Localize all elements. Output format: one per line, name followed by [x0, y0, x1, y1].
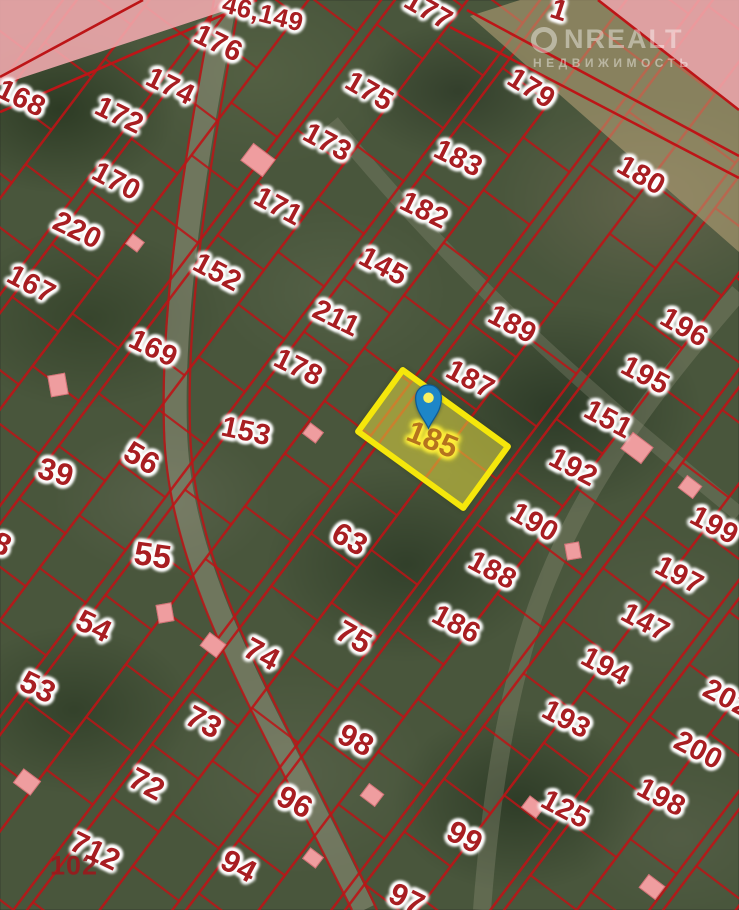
parcel-line	[173, 813, 219, 848]
parcel-line	[404, 295, 450, 330]
parcel-line	[358, 682, 404, 717]
parcel-line	[238, 304, 284, 339]
parcel-line	[133, 866, 179, 901]
parcel-line	[377, 24, 423, 59]
parcel-line	[523, 137, 569, 172]
parcel-line	[418, 699, 464, 734]
parcel-line	[483, 190, 529, 225]
parcel-line	[490, 392, 536, 427]
parcel-line	[643, 515, 689, 550]
parcel-line	[72, 313, 118, 348]
parcel-line	[530, 875, 576, 910]
parcel-line	[696, 866, 739, 901]
location-pin-icon[interactable]	[410, 379, 447, 431]
parcel-line	[198, 357, 244, 392]
parcel-line	[292, 655, 338, 690]
parcel-line	[378, 752, 424, 787]
parcel-line	[729, 612, 739, 647]
parcel-line	[0, 148, 12, 183]
parcel-line	[371, 550, 417, 585]
parcel-label-55: 55	[132, 536, 174, 574]
parcel-line	[444, 779, 490, 814]
parcel-line	[46, 770, 92, 805]
parcel-line	[544, 743, 590, 778]
watermark-subtitle: НЕДВИЖИМОСТЬ	[533, 56, 693, 70]
watermark-logo-icon	[531, 27, 557, 53]
parcel-line	[26, 164, 72, 199]
parcel-line	[437, 41, 483, 76]
parcel-line	[131, 139, 177, 174]
parcel-line	[0, 621, 46, 656]
parcel-line	[0, 875, 13, 910]
road-right	[482, 292, 739, 910]
parcel-line	[0, 217, 32, 252]
building-marker	[47, 373, 69, 398]
parcel-line	[311, 0, 357, 32]
parcel-line	[264, 384, 310, 419]
parcel-line	[285, 453, 331, 488]
parcel-line	[397, 630, 443, 665]
parcel-line	[99, 393, 145, 428]
parcel-line	[40, 568, 86, 603]
building-marker	[155, 602, 174, 623]
parcel-line	[0, 419, 39, 454]
parcel-line	[318, 199, 364, 234]
parcel-line	[530, 339, 576, 374]
parcel-line	[19, 499, 65, 534]
parcel-line	[425, 901, 471, 910]
parcel-line	[722, 410, 739, 445]
parcel-line	[675, 261, 721, 296]
parcel-line	[79, 515, 125, 550]
parcel-line	[351, 481, 397, 516]
parcel-line	[245, 506, 291, 541]
parcel-line	[278, 252, 324, 287]
parcel-line	[510, 270, 556, 305]
parcel-line	[271, 586, 317, 621]
cadastral-map[interactable]: 46,1491761771174175179168172173183180170…	[0, 0, 739, 910]
parcel-label-102: 102	[50, 853, 98, 880]
parcel-line	[0, 349, 19, 384]
parcel-line	[630, 839, 676, 874]
building-marker	[564, 541, 582, 560]
parcel-line	[33, 902, 79, 910]
parcel-line	[26, 700, 72, 735]
parcel-line	[126, 664, 172, 699]
parcel-line	[86, 717, 132, 752]
parcel-line	[397, 93, 443, 128]
parcel-line	[603, 568, 649, 603]
parcel-line	[231, 102, 277, 137]
parcel-line	[338, 804, 384, 839]
watermark-brand: NREALT	[564, 26, 684, 53]
parcel-line	[199, 893, 245, 910]
watermark: NREALT НЕДВИЖИМОСТЬ	[531, 26, 693, 70]
parcel-line	[212, 761, 258, 796]
parcel-line	[610, 234, 656, 269]
parcel-line	[591, 892, 637, 910]
